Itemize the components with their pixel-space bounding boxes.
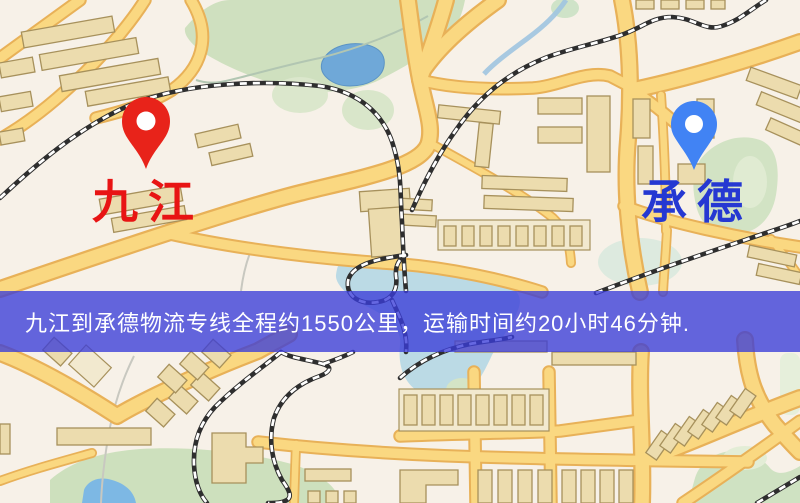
- route-info-banner: 九江到承德物流专线全程约1550公里，运输时间约20小时46分钟.: [0, 291, 800, 352]
- map-image: 九江 承德 九江到承德物流专线全程约1550公里，运输时间约20小时46分钟.: [0, 0, 800, 503]
- map-canvas: [0, 0, 800, 503]
- origin-label: 九江: [92, 179, 204, 225]
- destination-label: 承德: [641, 179, 753, 225]
- route-info-text: 九江到承德物流专线全程约1550公里，运输时间约20小时46分钟.: [0, 306, 690, 338]
